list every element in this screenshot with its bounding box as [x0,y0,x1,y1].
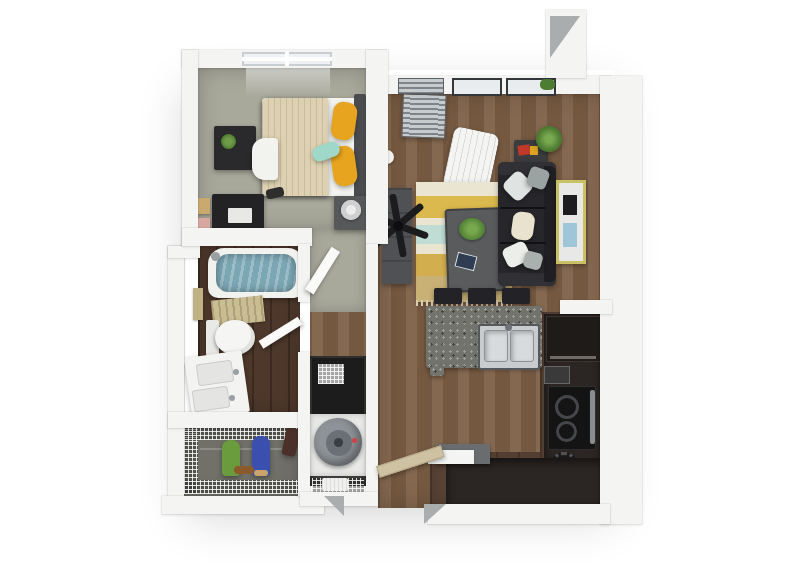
oven-handle [590,390,595,444]
wall-column-top-right [546,10,586,78]
floor-plan-canvas [0,0,785,581]
wall-bedroom-living [366,50,388,244]
wall-frame-tan [198,198,210,214]
double-sink [478,324,540,370]
hanging-blinds-panel [401,93,447,139]
kitchen-island-foot [430,366,444,376]
hallway-wood-floor [310,312,366,356]
books-red [517,144,530,156]
sink-basin-left [484,330,508,362]
wall-column-cut-face [550,16,580,58]
window-plant [540,79,555,90]
side-table-plant [536,126,562,152]
wall-bathroom-closet [168,412,302,428]
laundry-towel [322,478,348,491]
fan-hub [393,221,403,231]
sink-faucet [505,324,512,331]
closet-shelf-bottom [180,480,298,494]
bar-stool-2 [468,288,496,304]
cabinet-run-bottom [446,458,604,504]
wall-left-upper [182,50,198,246]
wall-left-lower [168,246,184,512]
living-window-2 [452,78,502,96]
refrigerator-handle [550,356,596,359]
cooktop [548,386,596,450]
vanity-faucet-1 [233,369,239,375]
art-frame-dark-shape [563,195,577,215]
table-lamp [341,200,361,220]
window-mullion-h [242,57,332,61]
wall-kitchen-jog [560,300,612,314]
bedroom-window [242,52,332,66]
coffee-table-plant [459,218,485,240]
bedroom-chair [252,138,278,180]
window-light-patch [246,68,330,96]
wall-hall-left-upper [298,244,310,302]
burner-small [556,421,577,442]
wall-kitchen-bottom [428,504,610,524]
bar-stool-1 [434,288,462,304]
wall-hall-left-lower [298,352,310,496]
sofa-cushion-seam-1 [500,207,546,209]
toilet-bowl [215,320,255,355]
wall-left-jog [168,246,200,258]
entry-jamb-left [324,496,344,516]
closet-shelf-top [180,428,298,440]
sink-basin-right [510,330,534,362]
toaster [544,366,570,384]
dresser-plant [221,134,236,149]
shoes-dark [234,466,254,474]
burner-large [555,395,579,419]
bar-stool-3 [502,288,530,304]
art-frame-blue-shape [563,223,577,247]
living-window-1 [398,78,444,94]
bath-faucet [211,252,220,261]
towel-rack [193,288,203,320]
bathtub-water [216,254,296,292]
wall-hall-right [366,244,378,496]
dresser [214,126,256,170]
vanity-faucet-2 [229,395,235,401]
laundry-wire-basket [318,364,344,384]
washer-indicator-light [352,438,357,443]
wall-bedroom-bathroom [182,228,312,246]
books-yellow [530,146,538,155]
desk-paper [228,208,252,223]
shoes-light [254,470,268,476]
washer-hub [334,438,343,447]
art-frame [556,180,586,264]
